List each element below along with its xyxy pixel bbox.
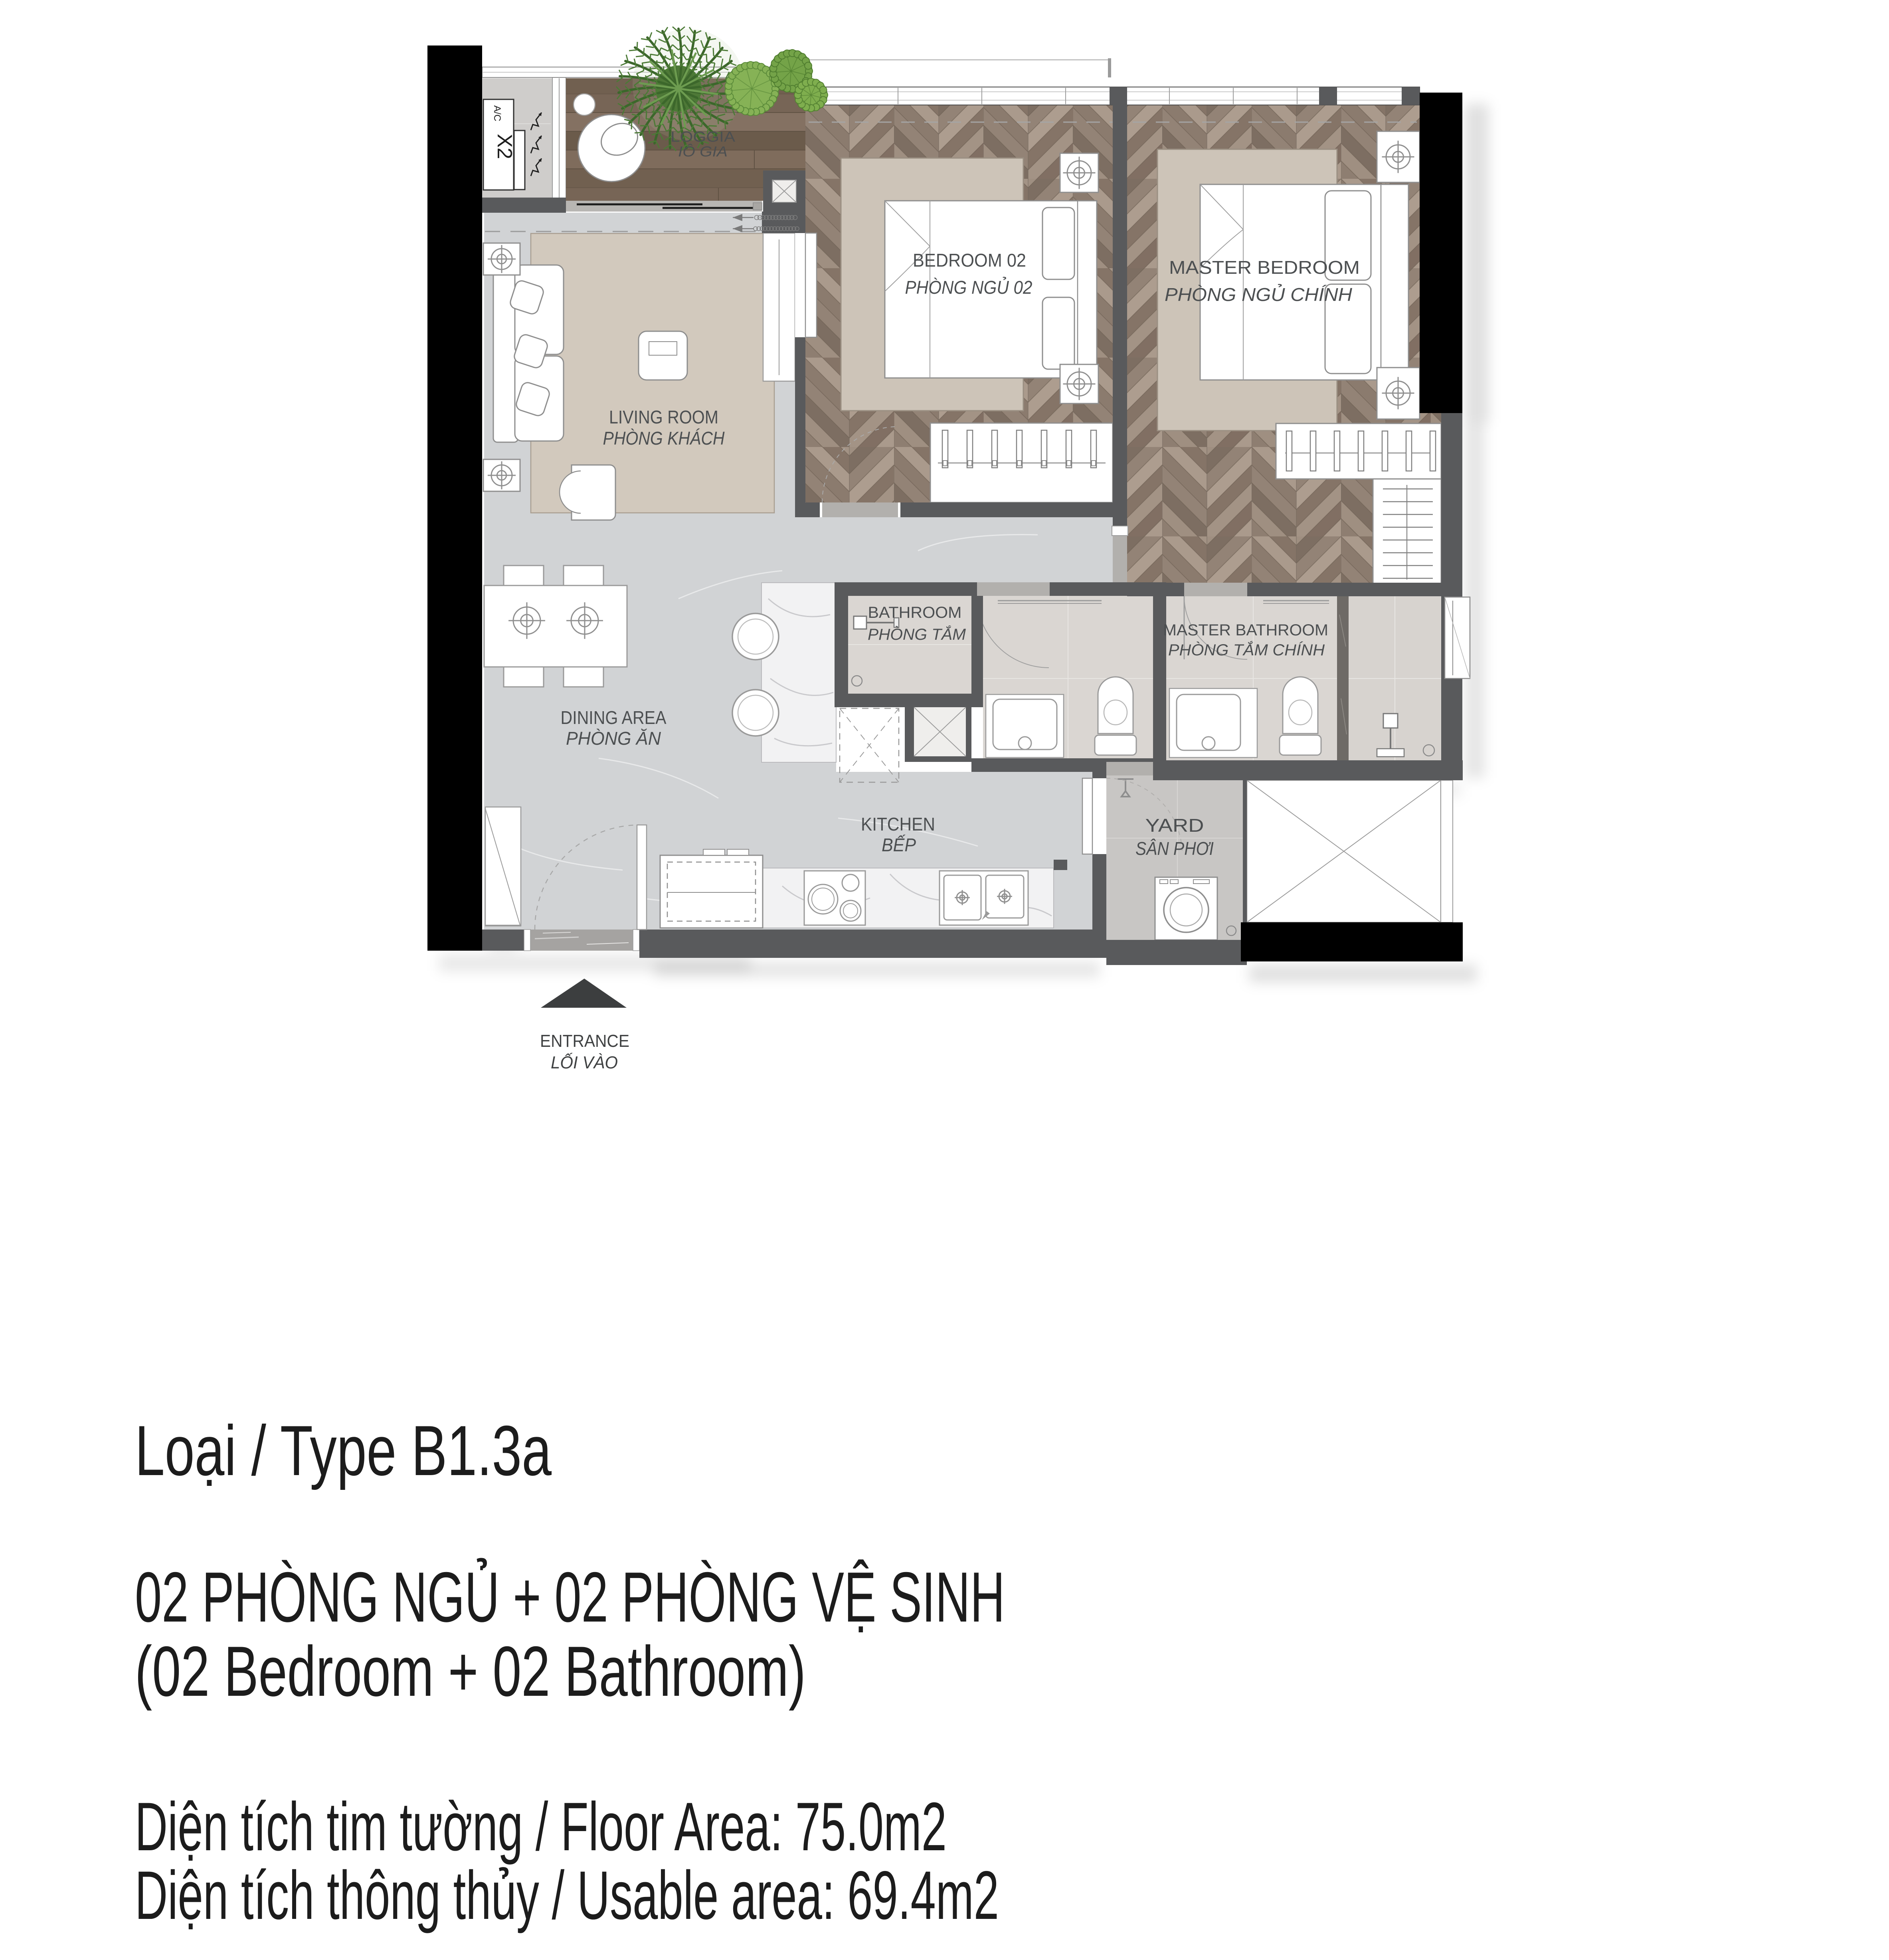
svg-text:YARD: YARD <box>1145 815 1204 836</box>
svg-text:LỐI VÀO: LỐI VÀO <box>551 1052 618 1072</box>
svg-text:Loại / Type B1.3a: Loại / Type B1.3a <box>135 1411 552 1490</box>
svg-text:PHÒNG NGỦ 02: PHÒNG NGỦ 02 <box>905 277 1033 298</box>
svg-text:LOGGIA: LOGGIA <box>671 129 735 145</box>
svg-text:BEDROOM 02: BEDROOM 02 <box>913 250 1026 271</box>
svg-text:Diện tích tim tường / Floor Ar: Diện tích tim tường / Floor Area: 75.0m2 <box>135 1788 947 1865</box>
svg-text:PHÒNG NGỦ CHÍNH: PHÒNG NGỦ CHÍNH <box>1165 284 1353 305</box>
svg-text:PHÒNG TẮM CHÍNH: PHÒNG TẮM CHÍNH <box>1168 641 1325 659</box>
svg-text:BATHROOM: BATHROOM <box>868 604 962 621</box>
svg-text:PHÒNG KHÁCH: PHÒNG KHÁCH <box>603 428 725 449</box>
svg-text:MASTER BATHROOM: MASTER BATHROOM <box>1163 621 1328 639</box>
svg-text:PHÒNG TẮM: PHÒNG TẮM <box>868 625 966 643</box>
svg-text:MASTER BEDROOM: MASTER BEDROOM <box>1169 257 1360 278</box>
svg-text:X2: X2 <box>493 134 516 159</box>
svg-text:02 PHÒNG NGỦ + 02 PHÒNG VỆ SIN: 02 PHÒNG NGỦ + 02 PHÒNG VỆ SINH <box>135 1557 1005 1637</box>
svg-text:BẾP: BẾP <box>882 835 916 855</box>
svg-text:LIVING ROOM: LIVING ROOM <box>609 407 718 427</box>
svg-text:IÔ GIA: IÔ GIA <box>678 143 728 160</box>
svg-text:PHÒNG ĂN: PHÒNG ĂN <box>566 728 661 749</box>
svg-text:(02 Bedroom + 02 Bathroom): (02 Bedroom + 02 Bathroom) <box>135 1632 806 1711</box>
svg-text:ENTRANCE: ENTRANCE <box>540 1031 629 1051</box>
svg-text:KITCHEN: KITCHEN <box>861 814 935 835</box>
svg-text:A/C: A/C <box>492 105 502 121</box>
svg-text:SÂN PHƠI: SÂN PHƠI <box>1135 838 1214 859</box>
svg-text:Diện tích thông thủy / Usable: Diện tích thông thủy / Usable area: 69.4… <box>135 1857 999 1934</box>
svg-text:DINING AREA: DINING AREA <box>561 707 667 728</box>
